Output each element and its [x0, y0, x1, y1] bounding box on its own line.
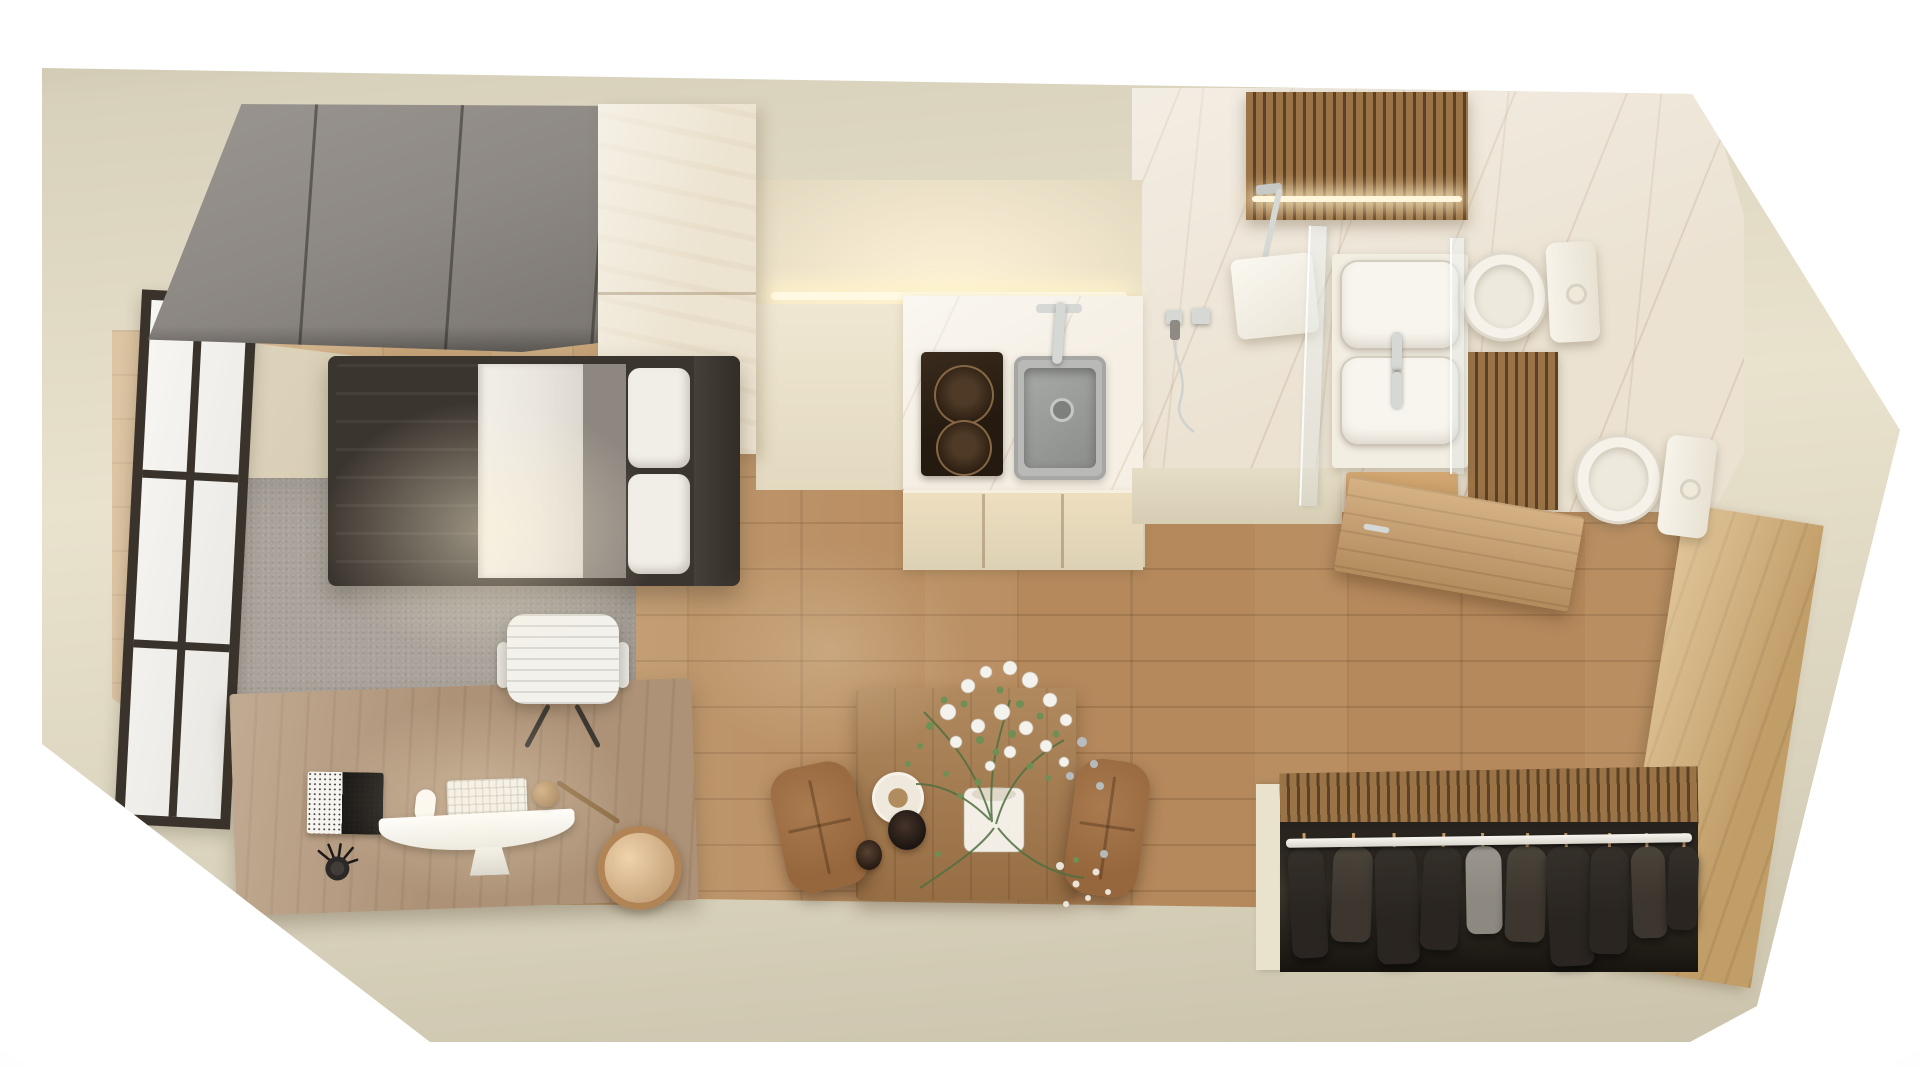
- garment: [1504, 845, 1547, 942]
- cabinet-split-line: [598, 292, 756, 295]
- hand-shower-hose: [1164, 320, 1224, 440]
- basin-faucet: [1392, 372, 1402, 410]
- garment: [1589, 846, 1629, 955]
- cooktop-burner: [934, 365, 994, 425]
- flower-vase-arrangement: [846, 616, 1126, 916]
- imac-stand: [469, 846, 510, 875]
- toilet-bowl: [1458, 249, 1551, 343]
- kitchen-sink: [1014, 356, 1106, 480]
- toilet-bowl: [1569, 429, 1667, 529]
- wardrobe-door-seam: [296, 100, 318, 367]
- shower-controls: [1164, 300, 1254, 440]
- sink-basin: [1024, 368, 1096, 468]
- wardrobe-door-seam: [442, 100, 464, 367]
- pen-cup: [312, 840, 362, 886]
- desk-lamp-base: [533, 781, 560, 808]
- notebook: [307, 771, 384, 834]
- cabinet-seam: [1061, 494, 1064, 568]
- garment: [1287, 845, 1329, 959]
- pillow: [628, 368, 690, 468]
- window-mullion-vertical: [169, 302, 204, 817]
- toilet-bottom: [1567, 419, 1730, 552]
- desk-lamp-shade: [596, 824, 683, 911]
- bed-duvet: [336, 364, 478, 578]
- garment: [1667, 846, 1700, 931]
- kitchen-wall-face: [756, 304, 903, 490]
- garment: [1330, 845, 1373, 942]
- garment: [1419, 845, 1462, 951]
- kitchen-backsplash-light: [756, 180, 1142, 304]
- kitchen-lower-cabinets: [903, 490, 1143, 570]
- cooktop-burner: [936, 420, 992, 476]
- toilet-top: [1457, 236, 1607, 353]
- apartment: [0, 0, 1920, 1067]
- induction-cooktop: [921, 352, 1003, 476]
- bed-headboard: [694, 356, 740, 586]
- basin-faucet: [1392, 332, 1402, 370]
- garment: [1374, 845, 1420, 964]
- office-chair: [497, 614, 629, 736]
- bathroom-slat-panel: [1468, 352, 1558, 510]
- garment: [1465, 846, 1503, 935]
- closet-side-wall: [1256, 784, 1280, 970]
- bed-blanket-band: [583, 364, 626, 578]
- open-closet: [1256, 770, 1698, 974]
- hanging-garments: [1282, 830, 1696, 972]
- garment: [1545, 845, 1595, 967]
- bed-folded-sheet: [478, 364, 583, 578]
- bed: [328, 356, 740, 586]
- sink-drain: [1050, 398, 1074, 422]
- garment: [1630, 845, 1667, 938]
- floorplan-render: [0, 0, 1920, 1067]
- vanity-glass-partition: [1450, 238, 1464, 474]
- chair-backrest: [507, 614, 619, 704]
- pillow: [628, 474, 690, 574]
- door-handle: [1363, 523, 1390, 533]
- cabinet-seam: [982, 494, 985, 568]
